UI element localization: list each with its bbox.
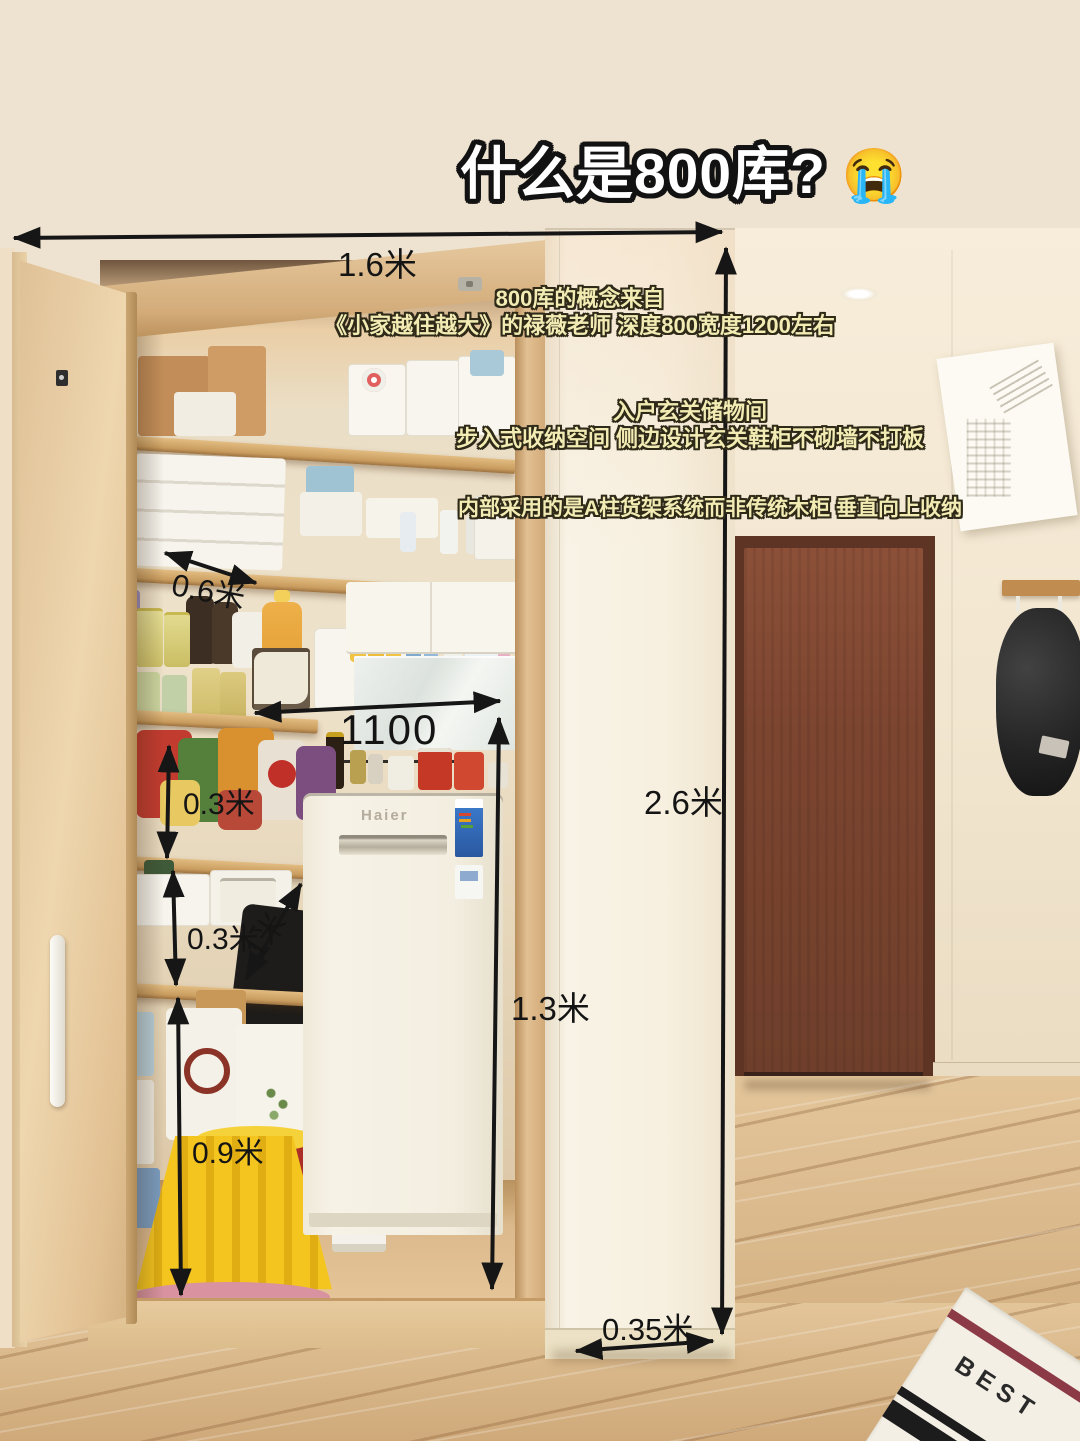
door-shadow: [745, 1080, 930, 1090]
beer-can: [220, 672, 246, 720]
fridge-sticker: [455, 865, 483, 899]
red-container: [454, 752, 484, 790]
bottle: [400, 512, 416, 552]
cabinet-door-seam: [430, 582, 432, 652]
dimension-nook-height: 1.3米: [511, 982, 590, 1030]
dimension-inner-width: 1100: [340, 706, 438, 754]
beer-can: [164, 612, 190, 667]
bag-print: [184, 1048, 230, 1094]
dimension-opening-width: 1.6米: [338, 238, 417, 286]
doormat-stripe: [882, 1399, 1080, 1441]
print-box: [252, 648, 310, 710]
entry-door: [744, 548, 923, 1074]
closet-door-handle: [50, 935, 65, 1107]
caption-concept-origin: 800库的概念来自 《小家越住越大》的禄薇老师 深度800宽度1200左右: [280, 285, 880, 339]
caption-line: 《小家越住越大》的禄薇老师 深度800宽度1200左右: [280, 312, 880, 339]
cup: [488, 762, 508, 788]
caption-shelf-system: 内部采用的是A柱货架系统而非传统木柜 垂直向上收纳: [440, 495, 980, 522]
crying-emoji: 😭: [842, 147, 908, 205]
closet-door-edge: [126, 292, 137, 1324]
fridge: Haier: [303, 793, 503, 1235]
dimension-floor-clearance: 0.9米: [192, 1128, 264, 1172]
white-box: [174, 392, 236, 436]
page-title: 什么是800库?😭: [460, 128, 908, 210]
white-box: [300, 492, 362, 536]
dimension-shelf-gap-upper: 0.3米: [183, 779, 255, 823]
caption-entry-storage: 入户玄关储物间 步入式收纳空间 侧边设计玄关鞋柜不砌墙不打板: [430, 398, 950, 452]
energy-label: [455, 799, 483, 857]
caption-line: 入户玄关储物间: [430, 398, 950, 425]
poster-print: [989, 360, 1052, 414]
panel-shadow: [552, 1350, 732, 1362]
overhead-cabinet: [346, 582, 518, 654]
caption-line: 步入式收纳空间 侧边设计玄关鞋柜不砌墙不打板: [430, 425, 950, 452]
backpack-label: [1038, 735, 1069, 758]
rack-bracket: [1016, 596, 1020, 612]
bag-print: [262, 1080, 292, 1124]
snack-print: [268, 760, 296, 788]
dimension-panel-depth: 0.35米: [602, 1304, 693, 1349]
spice-jar: [368, 754, 383, 784]
white-jar: [388, 756, 414, 790]
open-closet-door: [15, 255, 137, 1347]
title-text: 什么是800库?: [460, 142, 826, 206]
caption-line: 内部采用的是A柱货架系统而非传统木柜 垂直向上收纳: [440, 495, 980, 522]
door-cast-shadow: [134, 290, 164, 1312]
poster-print: [967, 419, 1011, 497]
red-container: [418, 748, 452, 790]
wall-hook-rack: [1002, 580, 1080, 596]
beer-can: [192, 668, 220, 720]
fridge-brand-logo: Haier: [361, 807, 409, 824]
fridge-kick: [309, 1213, 497, 1227]
caption-line: 800库的概念来自: [280, 285, 880, 312]
closet-sill: [88, 1298, 550, 1348]
juice-bottle-cap: [274, 590, 290, 602]
annotated-pantry-photo: BEST: [0, 0, 1080, 1441]
hanging-backpack: [996, 608, 1080, 796]
spice-jar: [350, 750, 366, 784]
blue-box: [470, 350, 504, 376]
fridge-handle: [339, 835, 447, 855]
dimension-closet-height: 2.6米: [644, 776, 723, 824]
tape-roll: [362, 368, 386, 392]
door-hinge: [56, 370, 68, 386]
